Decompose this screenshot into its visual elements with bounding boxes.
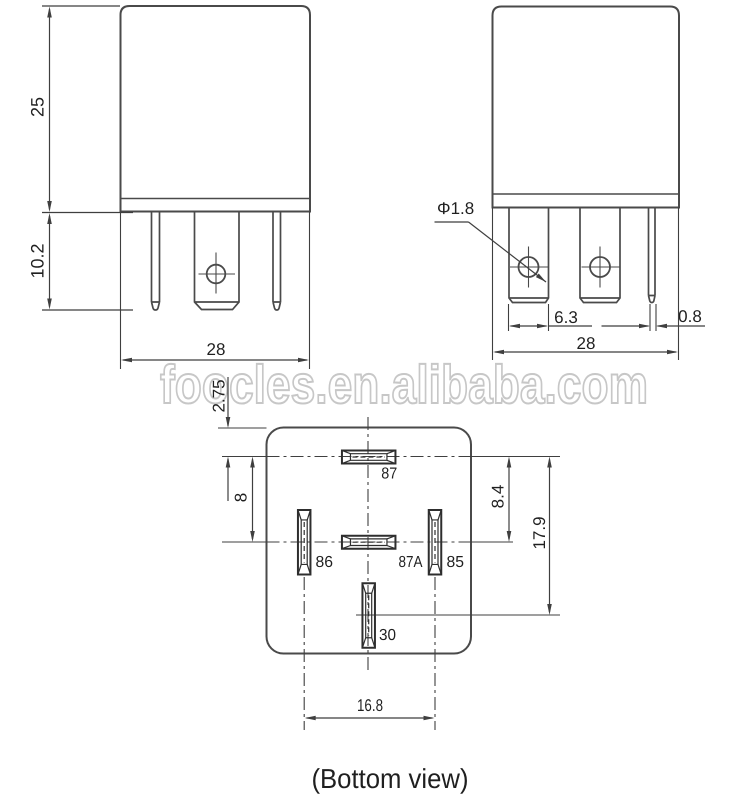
svg-text:2.75: 2.75 — [210, 379, 229, 412]
svg-text:25: 25 — [28, 97, 48, 117]
svg-text:17.9: 17.9 — [530, 516, 549, 549]
svg-text:0.8: 0.8 — [678, 307, 702, 326]
svg-text:85: 85 — [447, 554, 465, 571]
svg-text:28: 28 — [577, 334, 596, 353]
svg-text:87: 87 — [381, 466, 397, 483]
svg-text:6.3: 6.3 — [554, 308, 578, 327]
svg-text:8.4: 8.4 — [489, 485, 508, 509]
svg-text:Φ1.8: Φ1.8 — [437, 199, 474, 218]
svg-text:86: 86 — [316, 554, 334, 571]
svg-text:87A: 87A — [399, 554, 423, 571]
svg-text:foocles.en.alibaba.com: foocles.en.alibaba.com — [160, 355, 648, 415]
svg-text:16.8: 16.8 — [357, 696, 383, 715]
svg-text:10.2: 10.2 — [28, 243, 48, 278]
svg-text:8: 8 — [232, 493, 251, 502]
svg-text:(Bottom view): (Bottom view) — [312, 763, 469, 794]
svg-text:30: 30 — [379, 627, 396, 644]
